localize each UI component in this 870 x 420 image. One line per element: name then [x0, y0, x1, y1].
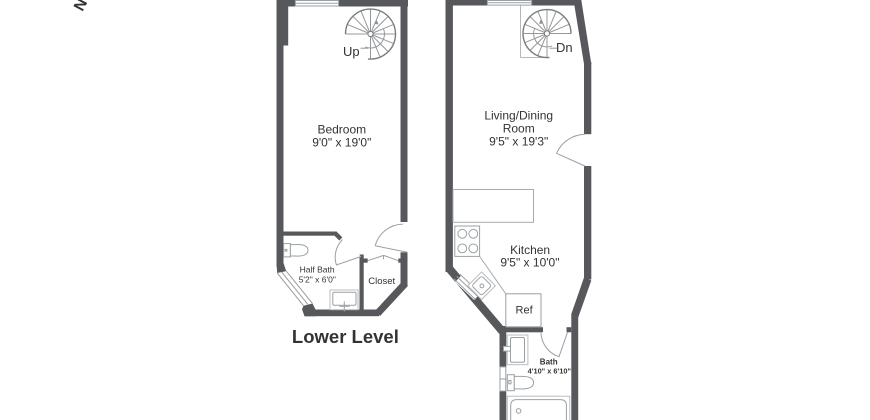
svg-text:Bedroom: Bedroom [317, 122, 366, 136]
svg-text:9'5" x 10'0": 9'5" x 10'0" [500, 256, 559, 270]
svg-text:Half Bath: Half Bath [300, 265, 335, 275]
svg-text:4'10" x 6'10": 4'10" x 6'10" [528, 367, 572, 376]
svg-text:Ref: Ref [516, 305, 534, 317]
svg-text:Lower Level: Lower Level [292, 326, 399, 347]
svg-text:5'2" x 6'0": 5'2" x 6'0" [299, 275, 336, 285]
svg-text:Room: Room [503, 121, 535, 135]
svg-text:Closet: Closet [368, 276, 395, 287]
svg-text:Bath: Bath [540, 357, 558, 366]
svg-text:9'0" x 19'0": 9'0" x 19'0" [312, 136, 371, 150]
svg-text:Dn: Dn [556, 40, 573, 55]
svg-text:Up: Up [343, 44, 360, 59]
svg-text:9'5" x 19'3": 9'5" x 19'3" [489, 135, 548, 149]
